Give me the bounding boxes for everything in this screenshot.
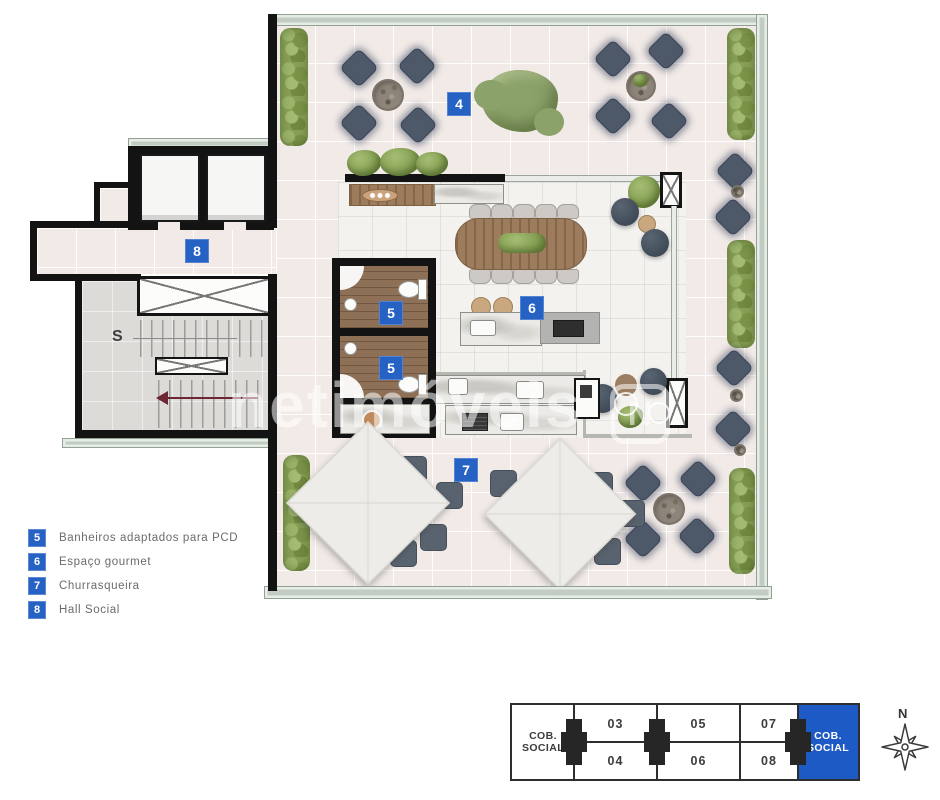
compass-rose-icon	[880, 722, 930, 772]
plant-pot	[730, 389, 743, 402]
elevator-cab	[206, 154, 266, 222]
island-sink	[470, 320, 496, 336]
hedge	[727, 240, 755, 348]
keyplan-divider	[574, 741, 798, 743]
hedge	[280, 28, 308, 146]
legend-item-gourmet: 6 Espaço gourmet	[28, 553, 151, 571]
area-label-8: 8	[185, 239, 209, 263]
table-centerpiece	[498, 233, 546, 253]
dining-chair	[513, 269, 535, 284]
stairs-s-label: S	[112, 328, 123, 346]
tree	[482, 70, 558, 132]
area-label-5a: 5	[379, 301, 403, 325]
legend-item-hall: 8 Hall Social	[28, 601, 120, 619]
dining-chair	[535, 204, 557, 219]
legend-label: Banheiros adaptados para PCD	[59, 532, 238, 544]
elevator-door	[224, 222, 246, 230]
stair-wall-left	[75, 274, 82, 438]
decor-dish	[362, 189, 398, 202]
gourmet-glass-wall	[671, 206, 677, 378]
key-plan: COB. SOCIAL 03 04 05 06 07 08 COB. SOCIA…	[510, 703, 860, 781]
keyplan-core	[785, 719, 811, 765]
compass-north-label: N	[898, 706, 907, 721]
shaft-void	[137, 276, 272, 316]
parapet-bottom	[264, 586, 772, 599]
legend-item-churrasqueira: 7 Churrasqueira	[28, 577, 140, 595]
hall-wall-top	[37, 221, 128, 228]
legend-item-banheiros: 5 Banheiros adaptados para PCD	[28, 529, 238, 547]
keyplan-core	[644, 719, 670, 765]
dining-chair	[491, 269, 513, 284]
dining-chair	[469, 204, 491, 219]
pouf	[611, 198, 639, 226]
watermark-logo-letter: N	[628, 395, 653, 434]
fire-pit-planter	[372, 79, 404, 111]
basin	[344, 298, 357, 311]
dining-chair	[469, 269, 491, 284]
basin	[344, 342, 357, 355]
dining-chair	[557, 269, 579, 284]
keyplan-core	[561, 719, 587, 765]
dining-chair	[535, 269, 557, 284]
area-label-4: 4	[447, 92, 471, 116]
area-label-7: 7	[454, 458, 478, 482]
legend-key-7: 7	[28, 577, 46, 595]
legend-key-5: 5	[28, 529, 46, 547]
plant-pot	[731, 185, 744, 198]
cooktop	[553, 320, 584, 337]
dining-chair	[491, 204, 513, 219]
area-label-6: 6	[520, 296, 544, 320]
dining-chair	[557, 204, 579, 219]
pouf	[641, 229, 669, 257]
hall-wall-end	[30, 221, 37, 281]
watermark-text: netimóveis	[228, 368, 582, 442]
hall-floor	[37, 228, 276, 274]
watermark-logo: N	[610, 384, 670, 444]
toilet	[398, 281, 420, 298]
stair-guide-line	[133, 338, 237, 339]
buffet-counter-marble	[434, 184, 504, 204]
toilet-tank	[418, 279, 427, 300]
legend-key-8: 8	[28, 601, 46, 619]
stair-landing-rail	[155, 357, 228, 375]
hedge	[727, 28, 755, 140]
elevator-door	[158, 222, 180, 230]
dining-chair	[513, 204, 535, 219]
legend-label: Churrasqueira	[59, 580, 140, 592]
stair-wall-top	[75, 274, 141, 281]
legend-label: Espaço gourmet	[59, 556, 151, 568]
fire-pit-planter	[653, 493, 685, 525]
legend-key-6: 6	[28, 553, 46, 571]
legend-label: Hall Social	[59, 604, 120, 616]
stair-direction-arrow	[156, 391, 168, 405]
plant-pot	[734, 444, 746, 456]
parapet-right	[756, 14, 768, 600]
hall-wall-bottom	[30, 274, 80, 281]
parapet-top	[268, 14, 768, 26]
gourmet-door-top	[660, 172, 682, 208]
elevator-cab	[140, 154, 200, 222]
hedge	[729, 468, 755, 574]
floor-plan-page: S 4 8 5 5 6 7 netimóveis N 5 Banheiros a…	[0, 0, 940, 800]
